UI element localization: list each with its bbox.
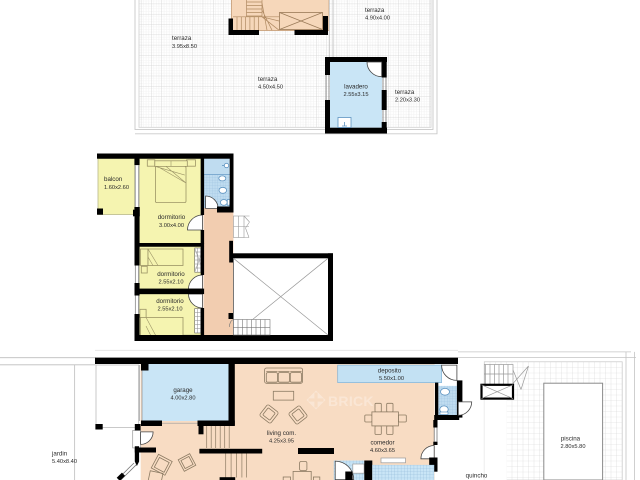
svg-text:living com.: living com. [267,430,297,437]
svg-text:5.40x8.40: 5.40x8.40 [52,459,77,465]
svg-text:4.25x3.95: 4.25x3.95 [269,439,294,445]
svg-text:2.20x3.30: 2.20x3.30 [395,98,420,104]
svg-text:terraza: terraza [365,7,385,14]
svg-text:5.50x1.00: 5.50x1.00 [379,376,404,382]
svg-text:quincho: quincho [466,473,488,480]
svg-text:BRICK: BRICK [328,393,374,409]
svg-text:3.00x4.00: 3.00x4.00 [159,223,184,229]
svg-text:3.95x8.50: 3.95x8.50 [172,44,197,50]
svg-text:terraza: terraza [258,76,278,83]
svg-text:1.60x2.60: 1.60x2.60 [104,185,129,191]
svg-text:garage: garage [173,387,193,394]
svg-text:piscina: piscina [561,436,581,443]
svg-text:dormitorio: dormitorio [157,271,185,278]
svg-text:terraza: terraza [395,89,415,96]
svg-text:4.60x3.65: 4.60x3.65 [370,448,395,454]
svg-text:terraza: terraza [172,35,192,42]
svg-text:dormitorio: dormitorio [158,214,186,221]
svg-text:4.50x4.50: 4.50x4.50 [258,85,283,91]
svg-text:jardin: jardin [51,451,68,458]
svg-text:dormitorio: dormitorio [156,298,184,305]
svg-text:deposito: deposito [378,368,402,375]
svg-text:4.00x2.80: 4.00x2.80 [171,396,196,402]
svg-text:2.55x2.10: 2.55x2.10 [158,307,183,313]
svg-text:balcon: balcon [104,176,123,183]
svg-text:2.80x5.80: 2.80x5.80 [561,444,586,450]
svg-text:2.55x2.10: 2.55x2.10 [159,280,184,286]
svg-text:4.90x4.00: 4.90x4.00 [365,16,390,22]
svg-text:comedor: comedor [370,440,394,447]
svg-text:lavadero: lavadero [344,84,368,91]
svg-text:2.55x3.15: 2.55x3.15 [344,92,369,98]
